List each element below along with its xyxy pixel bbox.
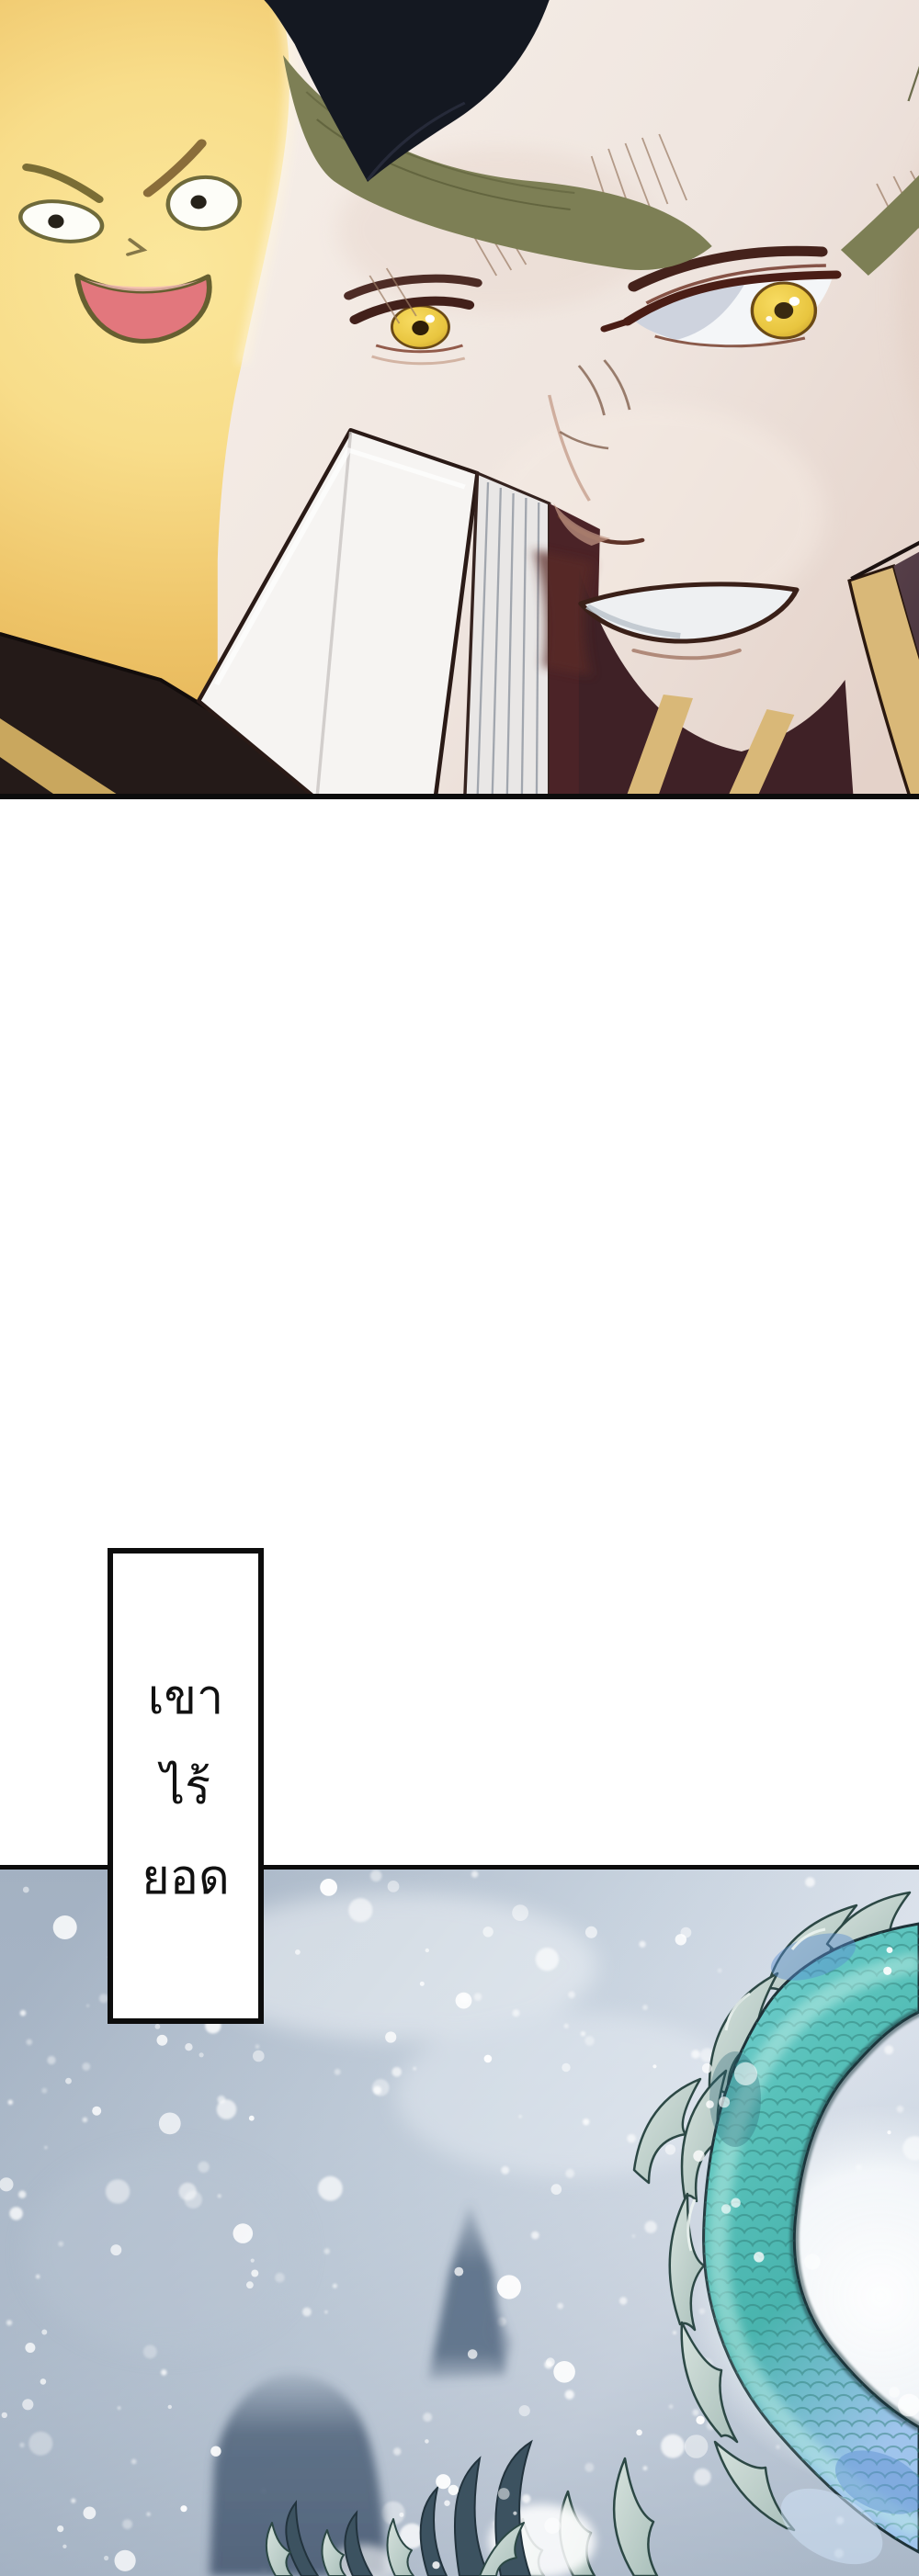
speech-box: เขา ไร้ ยอด — [108, 1548, 264, 2024]
speech-line-3: ยอด — [142, 1833, 229, 1923]
panel-face-closeup — [0, 0, 919, 799]
panel-border-top-panel — [0, 794, 919, 799]
speech-line-1: เขา — [148, 1653, 224, 1743]
manhwa-page: { "page": { "width_px": 1000, "height_px… — [0, 0, 919, 2576]
speech-line-2: ไร้ — [161, 1743, 210, 1833]
